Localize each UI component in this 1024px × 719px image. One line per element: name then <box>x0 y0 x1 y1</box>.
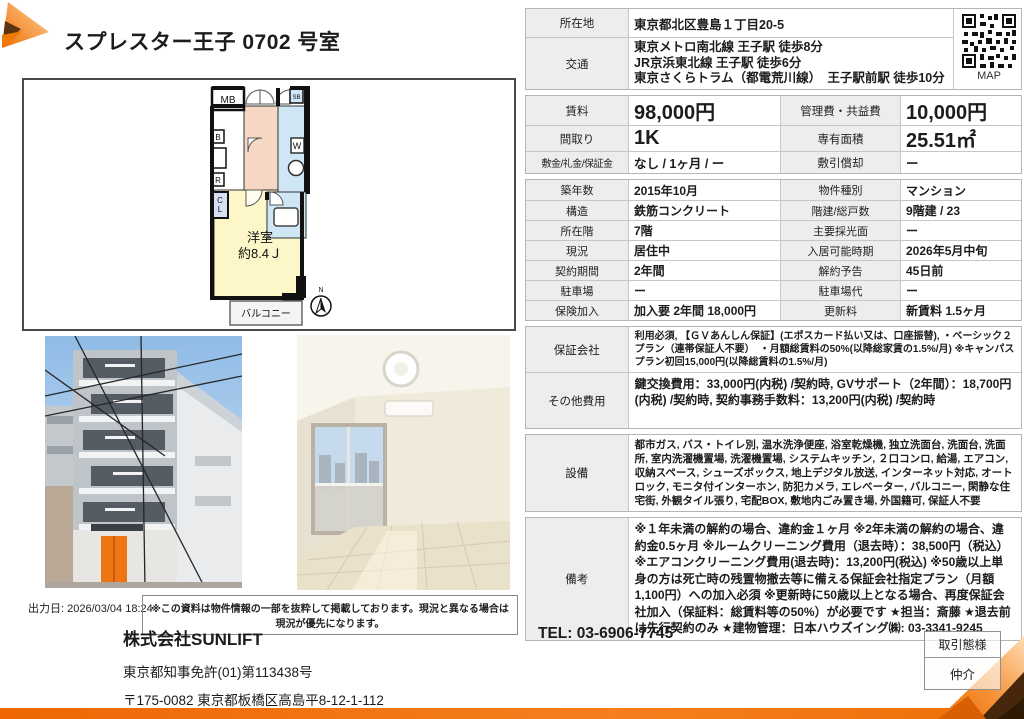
table-row: 所在地 東京都北区豊島１丁目20-5 <box>526 9 953 37</box>
floor-plan: W MB SB B R C L 洋室 <box>22 78 516 331</box>
map-qr-cell: MAP <box>953 9 1024 89</box>
deal-type-value: 仲介 <box>925 658 1000 689</box>
equipment-value: 都市ガス, バス・トイレ別, 温水洗浄便座, 浴室乾燥機, 独立洗面台, 洗面台… <box>629 435 1021 511</box>
area-value: 25.51㎡ <box>901 126 1020 151</box>
table-row: 築年数 2015年10月 物件種別 マンション <box>526 180 1021 200</box>
notes-value: ※１年未満の解約の場合、違約金１ヶ月 ※2年未満の解約の場合、違約金0.5ヶ月 … <box>629 518 1021 640</box>
corner-ribbon-top-left <box>1 1 55 51</box>
plan-cl-label: C <box>217 196 223 205</box>
plan-b-label: B <box>215 133 220 142</box>
company-name: 株式会社SUNLIFT <box>123 625 263 650</box>
table-row: 契約期間 2年間 解約予告 45日前 <box>526 260 1021 280</box>
table-row: 設備 都市ガス, バス・トイレ別, 温水洗浄便座, 浴室乾燥機, 独立洗面台, … <box>526 435 1021 511</box>
access-value: 東京メトロ南北線 王子駅 徒歩8分 JR京浜東北線 王子駅 徒歩6分 東京さくら… <box>629 38 950 89</box>
plan-room-size: 約8.4Ｊ <box>238 246 282 261</box>
map-label: MAP <box>977 70 1001 82</box>
photo-building-exterior <box>45 336 242 588</box>
management-fee-value: 10,000円 <box>901 96 1020 125</box>
deal-type-box: 取引態様 仲介 <box>924 631 1001 690</box>
table-row: 敷金/礼金/保証金 なし / 1ヶ月 / ー 敷引償却 ー <box>526 151 1021 173</box>
bottom-accent-bar <box>0 708 1024 719</box>
table-group-equipment: 設備 都市ガス, バス・トイレ別, 温水洗浄便座, 浴室乾燥機, 独立洗面台, … <box>525 434 1022 512</box>
plan-room-name: 洋室 <box>247 230 273 245</box>
address-value: 東京都北区豊島１丁目20-5 <box>629 9 953 37</box>
svg-text:L: L <box>218 205 223 214</box>
svg-text:N: N <box>318 287 323 294</box>
plan-sb-label: SB <box>292 95 300 101</box>
table-row: 間取り 1K 専有面積 25.51㎡ <box>526 125 1021 151</box>
table-row: 保証会社 利用必須, 【ＧＶあんしん保証】(エポスカード払い又は、口座振替), … <box>526 327 1021 372</box>
license-number: 東京都知事免許(01)第113438号 <box>123 661 313 681</box>
compass-north-icon: N <box>311 287 331 316</box>
floor-plan-drawing: W MB SB B R C L 洋室 <box>24 80 514 329</box>
table-row: 備考 ※１年未満の解約の場合、違約金１ヶ月 ※2年未満の解約の場合、違約金0.5… <box>526 518 1021 640</box>
map-qr-code <box>960 12 1018 70</box>
table-row: 賃料 98,000円 管理費・共益費 10,000円 <box>526 96 1021 125</box>
amortization-value: ー <box>901 152 1020 173</box>
guarantor-value: 利用必須, 【ＧＶあんしん保証】(エポスカード払い又は、口座振替), ・ベーシッ… <box>629 327 1021 372</box>
table-group-rent: 賃料 98,000円 管理費・共益費 10,000円 間取り 1K 専有面積 2… <box>525 95 1022 174</box>
table-row: 保険加入 加入要 2年間 18,000円 更新料 新賃料 1.5ヶ月 <box>526 300 1021 320</box>
table-row: 所在階 7階 主要採光面 ー <box>526 220 1021 240</box>
plan-balcony-label: バルコニー <box>241 308 291 320</box>
table-row: 構造 鉄筋コンクリート 階建/総戸数 9階建 / 23 <box>526 200 1021 220</box>
table-group-guarantor: 保証会社 利用必須, 【ＧＶあんしん保証】(エポスカード払い又は、口座振替), … <box>525 326 1022 429</box>
table-row: 交通 東京メトロ南北線 王子駅 徒歩8分 JR京浜東北線 王子駅 徒歩6分 東京… <box>526 37 953 89</box>
table-group-details: 築年数 2015年10月 物件種別 マンション 構造 鉄筋コンクリート 階建/総… <box>525 179 1022 321</box>
table-group-notes: 備考 ※１年未満の解約の場合、違約金１ヶ月 ※2年未満の解約の場合、違約金0.5… <box>525 517 1022 641</box>
deal-type-label: 取引態様 <box>925 632 1000 658</box>
company-address: 〒175-0082 東京都板橋区高島平8-12-1-112 <box>123 689 384 709</box>
deposit-value: なし / 1ヶ月 / ー <box>629 152 781 173</box>
plan-r-label: R <box>215 176 221 185</box>
photo-room-interior <box>297 335 510 590</box>
page-title: スプレスター王子 0702 号室 <box>64 26 340 56</box>
other-fees-value: 鍵交換費用：33,000円(内税) /契約時, GVサポート（2年間）：18,7… <box>629 373 1021 428</box>
table-row: 駐車場 ー 駐車場代 ー <box>526 280 1021 300</box>
table-row: 現況 居住中 入居可能時期 2026年5月中旬 <box>526 240 1021 260</box>
plan-washer-label: W <box>293 141 302 151</box>
layout-value: 1K <box>629 126 781 151</box>
rent-value: 98,000円 <box>629 96 781 125</box>
table-row: その他費用 鍵交換費用：33,000円(内税) /契約時, GVサポート（2年間… <box>526 372 1021 428</box>
property-sheet: スプレスター王子 0702 号室 W MB <box>0 0 1024 719</box>
phone-number: TEL: 03-6906-7745 <box>538 625 673 643</box>
property-table: 所在地 東京都北区豊島１丁目20-5 交通 東京メトロ南北線 王子駅 徒歩8分 … <box>525 8 1022 641</box>
table-group-location: 所在地 東京都北区豊島１丁目20-5 交通 東京メトロ南北線 王子駅 徒歩8分 … <box>525 8 1022 90</box>
output-date: 出力日: 2026/03/04 18:24 <box>28 600 153 616</box>
